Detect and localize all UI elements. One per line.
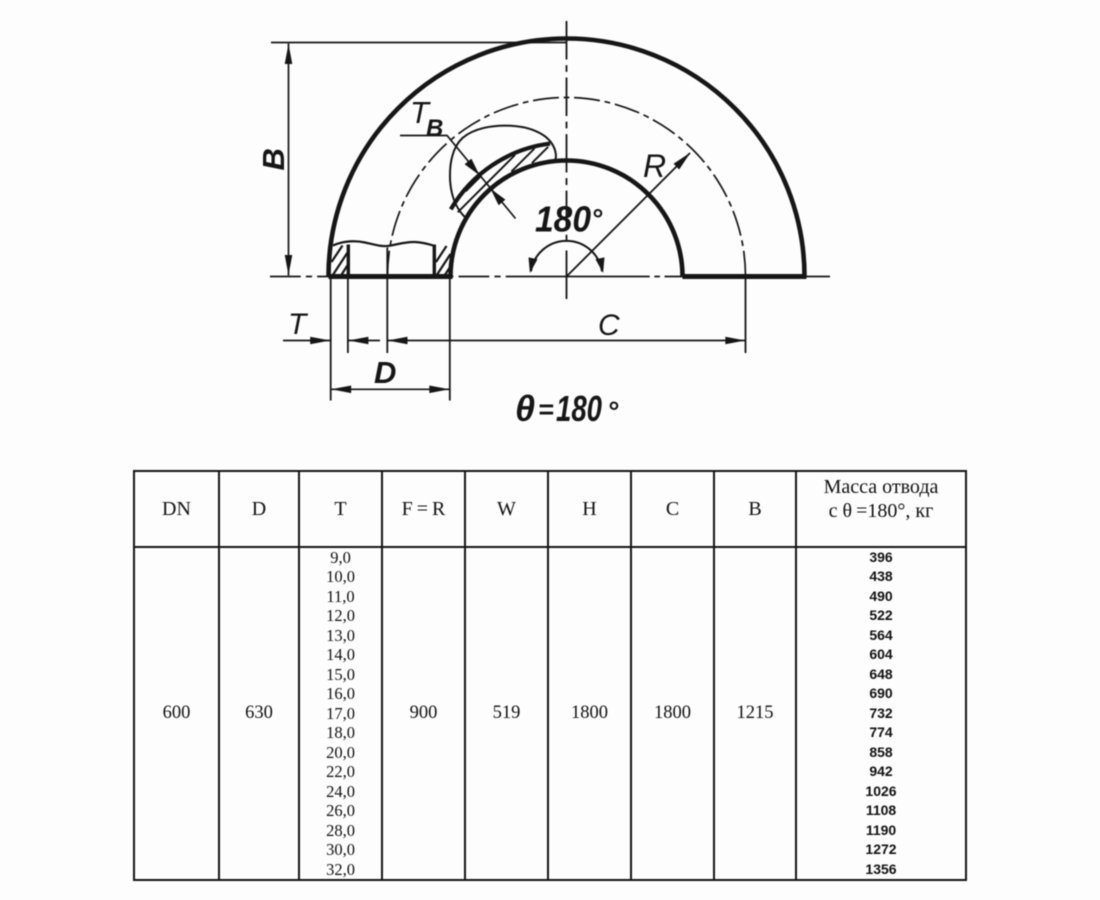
svg-text:=: =	[538, 395, 554, 425]
svg-text:D: D	[374, 355, 396, 390]
svg-text:θ: θ	[515, 388, 535, 429]
svg-text:180: 180	[556, 388, 602, 429]
svg-text:180: 180	[535, 199, 591, 240]
svg-text:°: °	[607, 396, 619, 427]
svg-text:T: T	[288, 308, 309, 341]
svg-text:C: C	[598, 309, 620, 342]
svg-text:°: °	[591, 204, 603, 235]
svg-text:R: R	[643, 148, 666, 184]
svg-text:B: B	[256, 148, 291, 170]
svg-text:B: B	[426, 115, 443, 142]
